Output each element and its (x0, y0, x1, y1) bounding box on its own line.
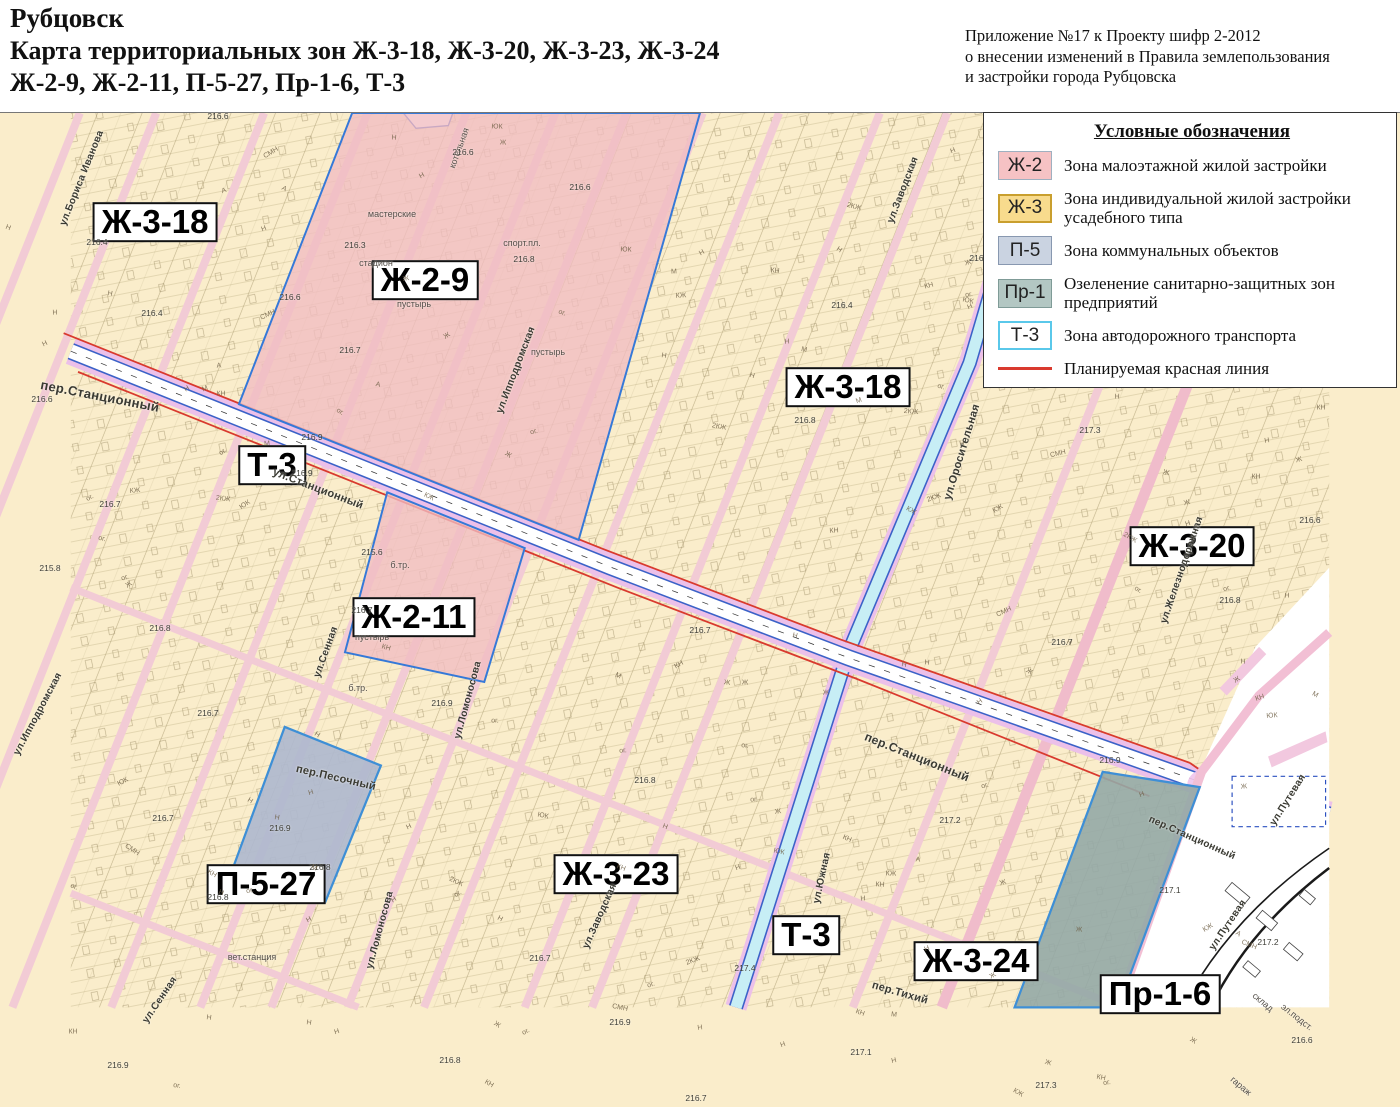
p5-label: Зона коммунальных объектов (1064, 241, 1279, 260)
pr1-swatch: Пр-1 (998, 279, 1052, 308)
map-title-line2: Карта территориальных зон Ж-3-18, Ж-3-20… (10, 35, 720, 67)
legend-item-redline: Планируемая красная линия (998, 359, 1386, 378)
legend-item-pr1: Пр-1 Озеленение санитарно-защитных зон п… (998, 274, 1386, 312)
annex-annotation: Приложение №17 к Проекту шифр 2-2012 о в… (965, 26, 1330, 88)
legend-item-zh2: Ж-2 Зона малоэтажной жилой застройки (998, 151, 1386, 180)
city-title: Рубцовск (10, 2, 720, 35)
t3-label: Зона автодорожного транспорта (1064, 326, 1296, 345)
annex-line3: и застройки города Рубцовска (965, 67, 1330, 88)
p5-swatch: П-5 (998, 236, 1052, 265)
zh2-label: Зона малоэтажной жилой застройки (1064, 156, 1327, 175)
legend-item-zh3: Ж-3 Зона индивидуальной жилой застройки … (998, 189, 1386, 227)
t3-swatch: Т-3 (998, 321, 1052, 350)
annex-line2: о внесении изменений в Правила землеполь… (965, 47, 1330, 68)
zh2-swatch: Ж-2 (998, 151, 1052, 180)
legend-title: Условные обозначения (998, 121, 1386, 143)
redline-label: Планируемая красная линия (1064, 359, 1269, 378)
legend-item-t3: Т-3 Зона автодорожного транспорта (998, 321, 1386, 350)
page-header: Рубцовск Карта территориальных зон Ж-3-1… (0, 0, 1400, 112)
map-title: Рубцовск Карта территориальных зон Ж-3-1… (10, 2, 720, 98)
legend-panel: Условные обозначения Ж-2 Зона малоэтажно… (983, 112, 1397, 388)
red-line-sample (998, 367, 1052, 370)
annex-line1: Приложение №17 к Проекту шифр 2-2012 (965, 26, 1330, 47)
zh3-label: Зона индивидуальной жилой застройки усад… (1064, 189, 1386, 227)
zh3-swatch: Ж-3 (998, 194, 1052, 223)
map-title-line3: Ж-2-9, Ж-2-11, П-5-27, Пр-1-6, Т-3 (10, 67, 720, 99)
legend-item-p5: П-5 Зона коммунальных объектов (998, 236, 1386, 265)
pr1-label: Озеленение санитарно-защитных зон предпр… (1064, 274, 1386, 312)
